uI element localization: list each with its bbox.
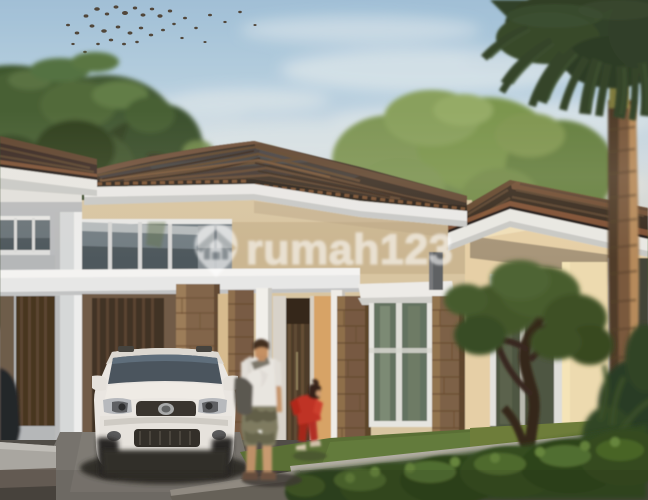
svg-text:rumah123: rumah123	[246, 226, 453, 274]
